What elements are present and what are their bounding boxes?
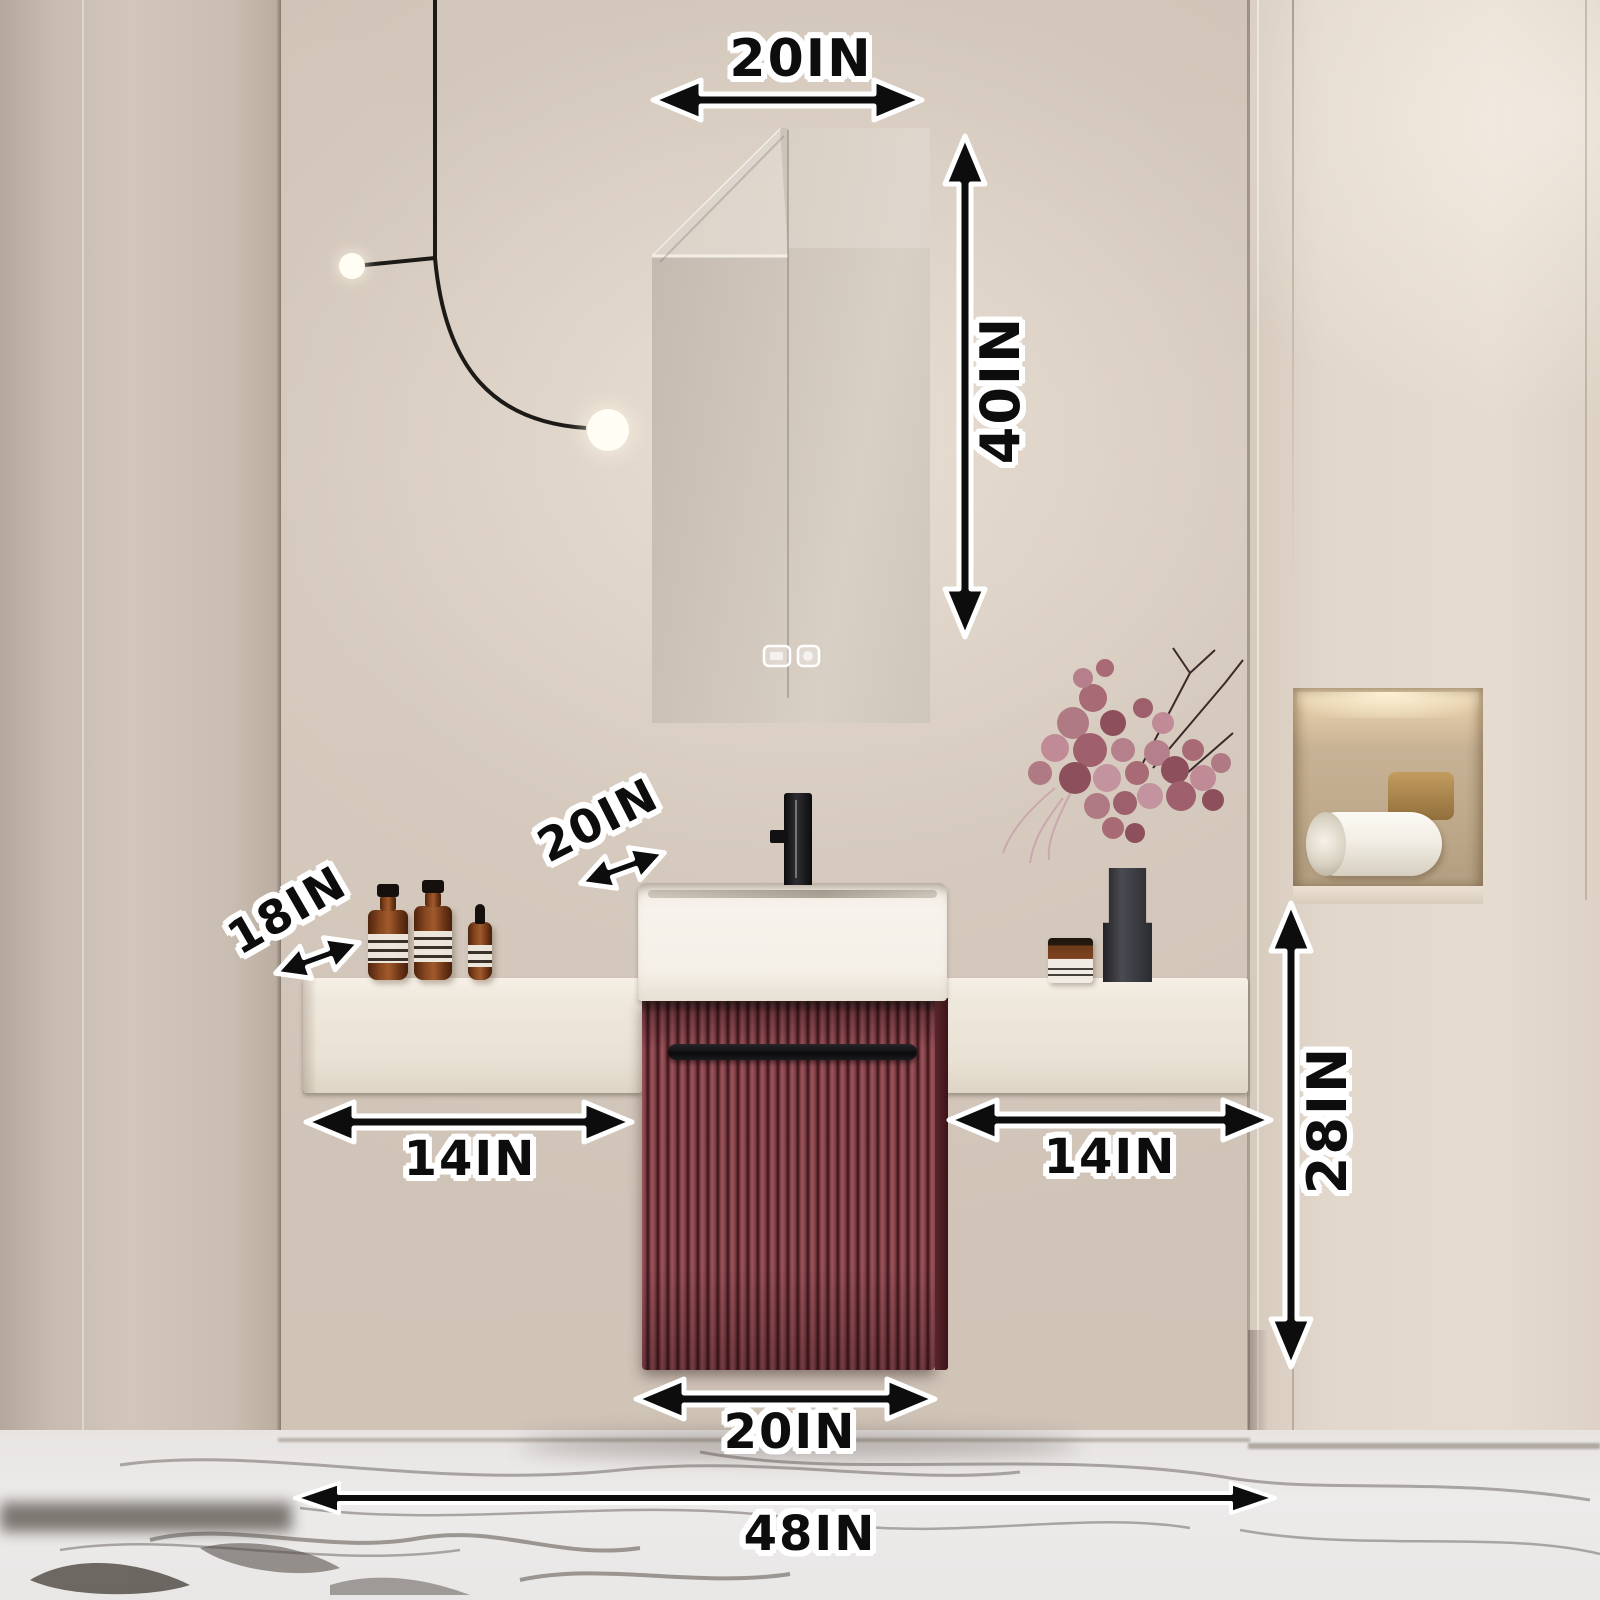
countertop-right-wing xyxy=(945,978,1248,1093)
dim-label-mirror-width: 20IN xyxy=(729,33,872,85)
right-wall-groove-highlight xyxy=(1257,0,1259,1447)
bottle-cap xyxy=(422,880,444,893)
left-pillar-base-shadow xyxy=(0,1502,292,1532)
dim-label-right-counter: 14IN xyxy=(1044,1133,1177,1181)
bathroom-scene: 20IN 40IN 20IN 18IN 14IN 14IN 28IN 20IN … xyxy=(0,0,1600,1600)
amber-jar xyxy=(1048,938,1093,983)
bottle-label xyxy=(468,945,492,967)
left-wall-corner-edge xyxy=(276,0,281,1516)
dim-label-overall-width: 48IN xyxy=(744,1510,877,1558)
dim-label-mirror-height: 40IN xyxy=(974,316,1028,464)
right-wall-panel-groove-upper xyxy=(1292,0,1294,690)
bottle-neck xyxy=(380,896,396,911)
dim-label-left-counter: 14IN xyxy=(404,1135,537,1183)
bottle-label xyxy=(414,931,452,962)
dropper-cap xyxy=(475,904,485,924)
pendant-bulb-small xyxy=(339,253,365,279)
niche-led-glow xyxy=(1297,692,1479,718)
dried-flowers xyxy=(985,638,1250,883)
led-mirror xyxy=(652,128,930,723)
cabinet-handle xyxy=(668,1044,917,1060)
countertop-left-wing xyxy=(303,978,642,1093)
right-column-base-shadow xyxy=(1248,1443,1600,1449)
flower-vase xyxy=(1103,868,1152,982)
bottle-cap xyxy=(377,884,399,897)
bottle-label xyxy=(368,934,408,963)
amber-bottle-1 xyxy=(368,910,408,980)
black-faucet xyxy=(784,793,812,885)
faucet-highlight xyxy=(795,800,797,878)
mirror-reflections xyxy=(652,128,930,723)
left-wall-pillar xyxy=(0,0,281,1516)
mirror-touch-buttons xyxy=(764,646,819,666)
cabinet-side-panel xyxy=(935,998,948,1370)
bottle-neck xyxy=(425,892,441,907)
amber-bottle-2 xyxy=(414,906,452,980)
faucet-lever xyxy=(770,830,788,843)
pendant-light xyxy=(330,0,650,470)
dim-label-under-counter-height: 28IN xyxy=(1301,1046,1355,1194)
dim-label-cabinet-width: 20IN xyxy=(724,1408,857,1456)
rolled-towel-end xyxy=(1306,812,1346,876)
right-wall-edge-groove xyxy=(1585,0,1587,900)
pendant-bulb-large xyxy=(587,409,629,451)
vessel-sink xyxy=(638,883,947,1001)
niche-shelf-lip xyxy=(1293,886,1483,904)
amber-dropper-bottle xyxy=(468,922,492,980)
left-wall-groove xyxy=(82,0,84,1510)
